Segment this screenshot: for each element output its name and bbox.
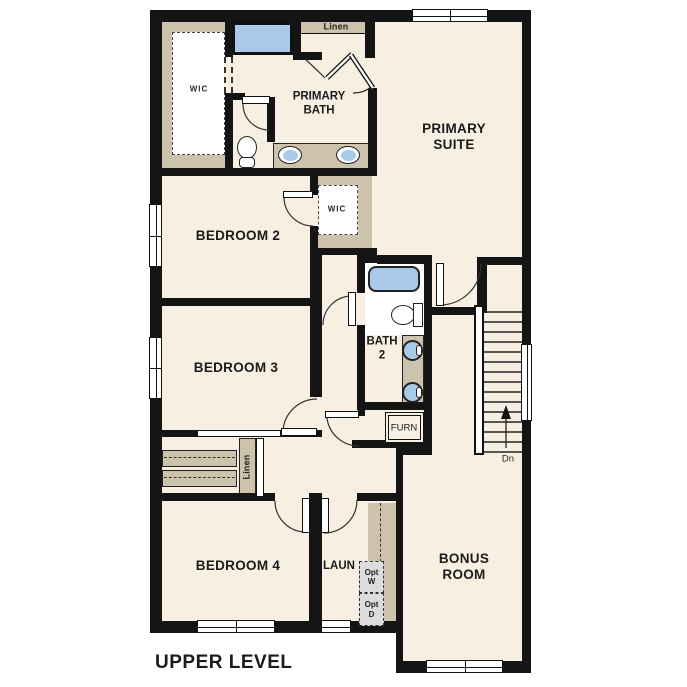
window-laundry	[321, 620, 351, 633]
laundry-closet-line	[380, 503, 381, 562]
wall	[357, 255, 432, 263]
closet-rod-line	[164, 477, 235, 478]
wall	[368, 88, 377, 176]
sink-faucet	[416, 345, 422, 356]
shower	[232, 22, 293, 55]
label-primary-bath: PRIMARY BATH	[293, 90, 346, 117]
sink-basin	[283, 150, 298, 161]
wall	[396, 447, 403, 673]
toilet-primary	[237, 136, 257, 159]
hall-closet-shelf-bottom	[162, 470, 237, 487]
wall	[431, 307, 480, 315]
wall	[357, 325, 365, 410]
page-title: UPPER LEVEL	[155, 652, 292, 674]
toilet-bath2	[391, 305, 415, 325]
bedroom3-closet-opening	[197, 430, 281, 437]
door-laundry	[321, 498, 329, 533]
label-linen-hall: Linen	[242, 455, 253, 480]
label-primary-wic: WIC	[190, 84, 209, 93]
wall	[358, 402, 432, 410]
door-water-closet	[242, 96, 270, 104]
wall	[424, 255, 432, 448]
wall	[396, 447, 432, 455]
label-linen-upper: Linen	[324, 22, 349, 33]
door-primary-suite	[436, 263, 444, 306]
label-furnace: FURN	[391, 422, 417, 433]
wall	[310, 306, 322, 397]
wall	[310, 255, 322, 306]
closet-rod-line	[164, 457, 235, 458]
label-primary-suite: PRIMARY SUITE	[422, 121, 486, 153]
label-bath2: BATH 2	[366, 335, 397, 362]
wall	[293, 22, 301, 60]
wall	[357, 255, 365, 293]
door-bedroom2-wic	[283, 191, 313, 198]
bathtub	[368, 266, 420, 292]
window-stairs	[521, 344, 532, 421]
wall	[162, 168, 377, 176]
wall	[150, 298, 322, 306]
sink-faucet	[416, 387, 422, 398]
primary-wic-opening	[224, 57, 233, 93]
label-bedroom3: BEDROOM 3	[194, 360, 278, 376]
window-primary-suite	[412, 9, 488, 22]
label-bonus-room: BONUS ROOM	[439, 551, 489, 583]
opt-washer-label: Opt W	[365, 568, 379, 586]
label-laundry: LAUN	[323, 560, 355, 574]
toilet-base-primary	[239, 157, 255, 168]
linen-hall-door	[256, 438, 264, 497]
wall	[150, 10, 162, 633]
wall	[365, 22, 375, 58]
wall	[357, 493, 402, 501]
label-bedroom2-wic: WIC	[328, 204, 347, 213]
floor-plan: Opt W Opt D WIC PRIMARY BATH Linen PRIMA…	[0, 0, 687, 687]
wall	[225, 93, 233, 168]
stair-rail	[474, 305, 484, 455]
opt-washer-box: Opt W	[359, 561, 384, 593]
door-bedroom3	[281, 428, 317, 436]
door-furnace	[325, 411, 359, 418]
window-bedroom4	[197, 620, 275, 633]
label-bedroom4: BEDROOM 4	[196, 558, 280, 574]
toilet-tank-bath2	[413, 303, 423, 327]
wall	[358, 402, 365, 416]
door-bedroom4	[302, 498, 310, 533]
sink-basin	[341, 150, 356, 161]
hall-closet-shelf-top	[162, 450, 237, 467]
opt-dryer-label: Opt D	[365, 600, 379, 618]
door-bath2	[348, 292, 356, 326]
window-bedroom3	[149, 337, 162, 399]
label-stairs-down: Dn	[502, 453, 514, 464]
window-bedroom2	[149, 204, 162, 267]
opt-dryer-box: Opt D	[359, 593, 384, 626]
window-bonus-room	[426, 660, 503, 673]
wall	[522, 10, 531, 673]
label-bedroom2: BEDROOM 2	[196, 228, 280, 244]
wall	[310, 248, 377, 255]
